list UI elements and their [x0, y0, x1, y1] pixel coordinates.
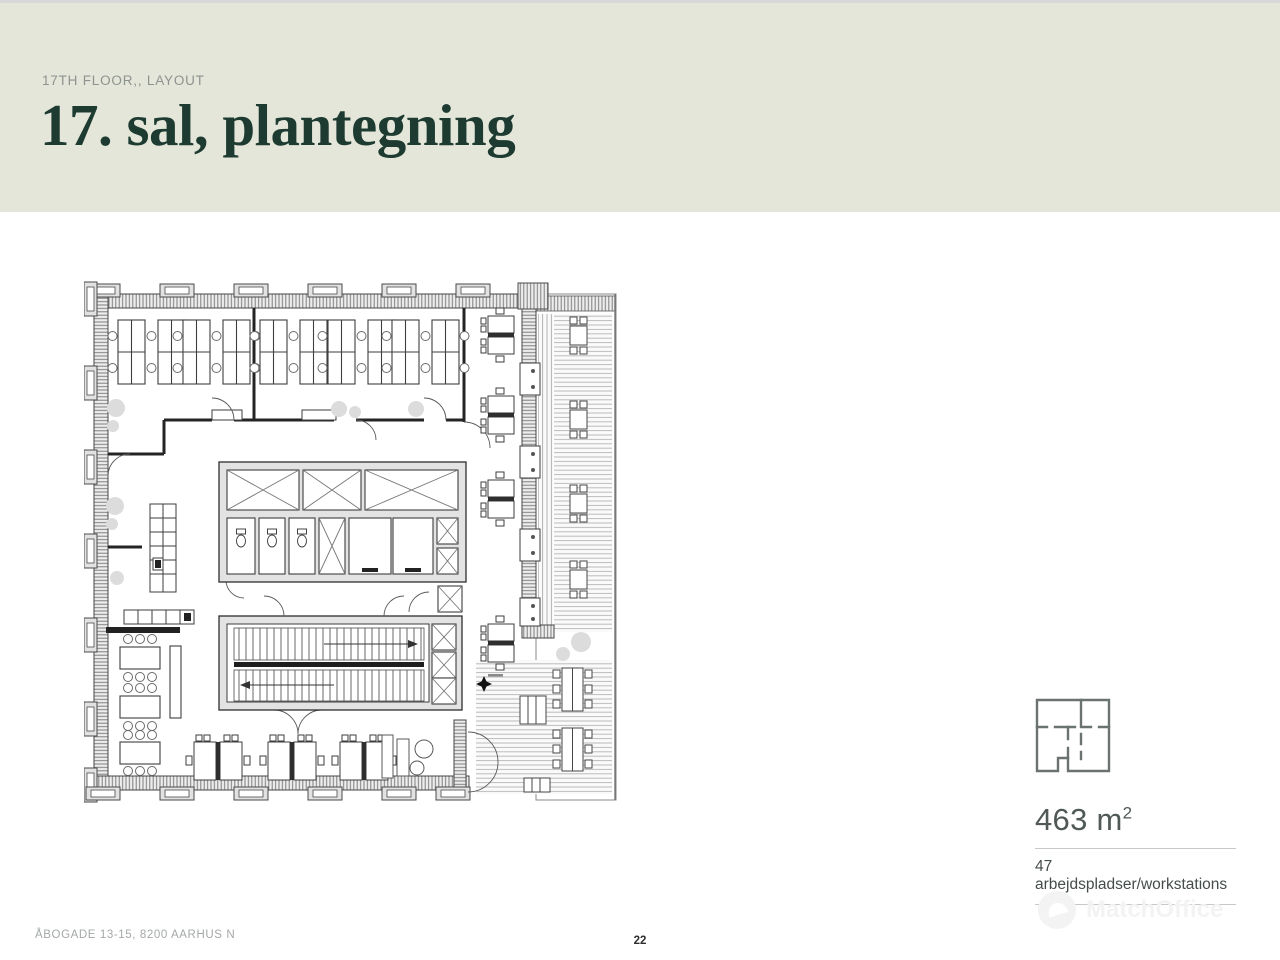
watermark: MatchOffice: [1038, 891, 1223, 929]
area-value: 463 m2: [1035, 802, 1236, 838]
floor-plan-drawing: [84, 280, 621, 814]
floorplan-outline-icon: [1035, 698, 1115, 776]
page-title: 17. sal, plantegning: [40, 91, 515, 160]
divider: [1035, 848, 1236, 849]
header-band: 17TH FLOOR,, LAYOUT 17. sal, plantegning: [0, 3, 1280, 212]
header-eyebrow: 17TH FLOOR,, LAYOUT: [42, 73, 205, 88]
info-panel: 463 m2 47 arbejdspladser/workstations: [1035, 698, 1236, 905]
slide: 17TH FLOOR,, LAYOUT 17. sal, plantegning: [0, 0, 1280, 960]
watermark-logo-icon: [1038, 891, 1076, 929]
watermark-label: MatchOffice: [1086, 896, 1223, 924]
page-number: 22: [0, 935, 1280, 947]
